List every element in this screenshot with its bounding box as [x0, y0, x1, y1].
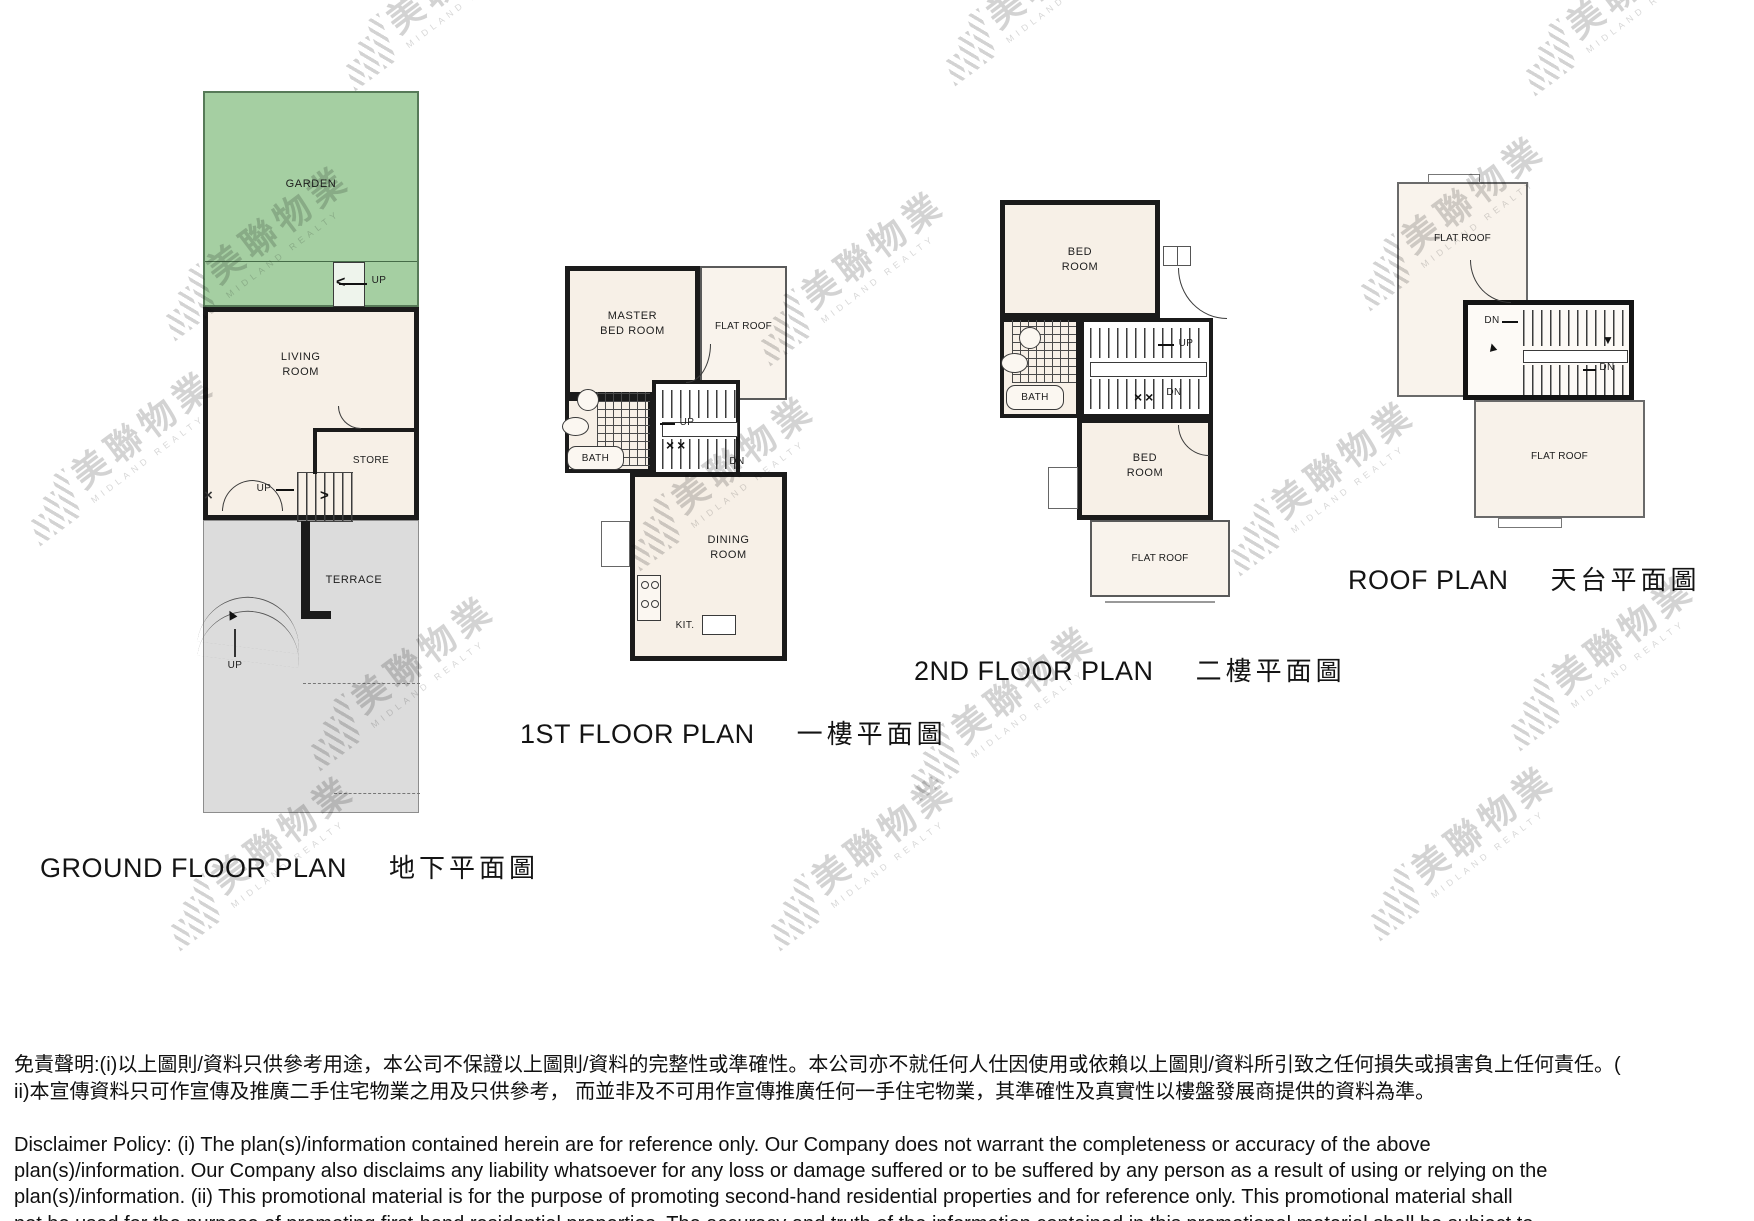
- first-up-label: UP: [676, 416, 698, 430]
- garden-terrace-divider-line: [205, 261, 417, 262]
- terrace-dashed-boundary: [303, 683, 420, 684]
- first-bathtub: BATH: [567, 446, 624, 470]
- watermark-text: 美聯物業: [794, 182, 953, 316]
- first-exterior-box: [601, 521, 630, 567]
- burner-3: [641, 600, 649, 608]
- roof-plan-title-zh: 天台平面圖: [1551, 565, 1701, 595]
- watermark-text: 美聯物業: [804, 767, 963, 901]
- watermark-subtext: MIDLAND REALTY: [404, 0, 544, 50]
- second-hall-door-arc: [1178, 268, 1227, 319]
- dining-room-label: DINING ROOM: [655, 533, 802, 563]
- ground-living-room: LIVING ROOM STORE > UP ×: [203, 307, 419, 520]
- burner-1: [641, 581, 649, 589]
- disclaimer-text-zh: 免責聲明:(i)以上圖則/資料只供參考用途，本公司不保證以上圖則/資料的完整性或…: [14, 1052, 1746, 1105]
- first-flat-roof-label: FLAT ROOF: [702, 320, 785, 334]
- second-door-swing-marks: ××: [1134, 390, 1156, 404]
- second-floor-plan-title-zh: 二樓平面圖: [1196, 656, 1346, 686]
- midland-watermark: 美聯物業 MIDLAND REALTY: [1354, 760, 1570, 939]
- disclaimer-block: 免責聲明:(i)以上圖則/資料只供參考用途，本公司不保證以上圖則/資料的完整性或…: [14, 1026, 1746, 1221]
- first-bath-sink: [577, 389, 599, 411]
- first-bath-toilet: [562, 417, 589, 436]
- entrance-door-arc-left: [222, 480, 253, 511]
- terrace-up-stem-line: [234, 629, 236, 657]
- first-dn-label: DN: [726, 455, 748, 469]
- ground-garden-area: GARDEN < UP: [203, 91, 419, 307]
- living-room-label: LIVING ROOM: [208, 350, 393, 380]
- midland-watermark: 美聯物業 MIDLAND REALTY: [894, 620, 1110, 799]
- midland-watermark: 美聯物業 MIDLAND REALTY: [754, 770, 970, 949]
- kitchen-label: KIT.: [670, 619, 700, 633]
- first-up-line: [660, 423, 675, 425]
- midland-logo-icon: [1354, 867, 1427, 939]
- midland-watermark: 美聯物業 MIDLAND REALTY: [1214, 395, 1430, 574]
- second-bedroom-bottom-label: BED ROOM: [1082, 451, 1208, 481]
- watermark-text: 美聯物業: [1559, 0, 1718, 46]
- entrance-door-arc-right: [252, 480, 283, 511]
- ground-floor-plan-title-en: GROUND FLOOR PLAN: [40, 853, 347, 883]
- roof-dn-right-label: DN: [1596, 361, 1618, 375]
- floorplan-page: GARDEN < UP LIVING ROOM STORE > UP × TER…: [0, 0, 1754, 1221]
- watermark-subtext: MIDLAND REALTY: [1004, 0, 1144, 45]
- first-master-bedroom: MASTER BED ROOM: [565, 266, 700, 397]
- watermark-text: 美聯物業: [979, 0, 1138, 36]
- first-floor-plan-title-zh: 一樓平面圖: [797, 719, 947, 749]
- second-flat-roof-label: FLAT ROOF: [1092, 552, 1228, 566]
- midland-logo-icon: [754, 877, 827, 949]
- watermark-subtext: MIDLAND REALTY: [829, 801, 969, 910]
- second-dn-label: DN: [1163, 386, 1185, 400]
- second-floor-plan-title: 2ND FLOOR PLAN二樓平面圖: [914, 651, 1346, 688]
- ground-terrace-area: TERRACE ▲ UP: [203, 520, 419, 813]
- terrace-wall-vertical: [301, 521, 310, 618]
- midland-logo-icon: [929, 12, 1002, 84]
- garden-up-arrow-icon: <: [336, 275, 345, 291]
- second-up-line: [1158, 344, 1174, 346]
- midland-logo-icon: [14, 472, 87, 544]
- wall-window-x-mark: ×: [204, 488, 213, 503]
- second-bedroom-bottom: BED ROOM: [1077, 418, 1213, 520]
- second-stairs-rail: [1090, 362, 1207, 377]
- first-kitchen-sink: [702, 615, 736, 635]
- roof-stairs-down-arrow-icon: ▼: [1602, 334, 1614, 346]
- midland-logo-icon: [1494, 677, 1567, 749]
- second-bath-label: BATH: [1007, 391, 1063, 405]
- watermark-text: 美聯物業: [1264, 392, 1423, 526]
- roof-flat-roof-top-label: FLAT ROOF: [1399, 232, 1526, 246]
- second-balcony-edge-line: [1105, 601, 1215, 603]
- second-bath-toilet: [1001, 353, 1028, 373]
- second-bedroom-top: BED ROOM: [1000, 200, 1160, 318]
- first-door-swing-marks: ××: [666, 438, 688, 452]
- second-up-label: UP: [1175, 337, 1197, 351]
- second-flat-roof: FLAT ROOF: [1090, 520, 1230, 597]
- second-bedroom-top-label: BED ROOM: [1005, 245, 1155, 275]
- first-bath-label: BATH: [568, 452, 623, 466]
- ground-stairs-up-line: [276, 489, 294, 491]
- watermark-subtext: MIDLAND REALTY: [1584, 0, 1724, 55]
- midland-watermark: 美聯物業 MIDLAND REALTY: [14, 365, 230, 544]
- garden-up-label: UP: [367, 274, 391, 288]
- watermark-subtext: MIDLAND REALTY: [1429, 791, 1569, 900]
- midland-watermark: 美聯物業 MIDLAND REALTY: [1509, 0, 1725, 94]
- second-closet-divider: [1177, 246, 1178, 266]
- ground-stairs-direction-arrow-icon: >: [320, 488, 329, 503]
- roof-plan-title: ROOF PLAN天台平面圖: [1348, 560, 1701, 597]
- midland-watermark: 美聯物業 MIDLAND REALTY: [929, 0, 1145, 84]
- watermark-subtext: MIDLAND REALTY: [1569, 601, 1709, 710]
- first-floor-plan-title-en: 1ST FLOOR PLAN: [520, 719, 755, 749]
- ground-floor-plan-title: GROUND FLOOR PLAN地下平面圖: [40, 848, 539, 885]
- store-wall-horizontal: [313, 428, 414, 432]
- roof-flat-roof-bottom: FLAT ROOF: [1474, 400, 1645, 518]
- second-exterior-box: [1048, 467, 1078, 509]
- watermark-text: 美聯物業: [64, 362, 223, 496]
- burner-2: [651, 581, 659, 589]
- midland-logo-icon: [1509, 22, 1582, 94]
- first-floor-plan-title: 1ST FLOOR PLAN一樓平面圖: [520, 714, 947, 751]
- second-floor-plan-title-en: 2ND FLOOR PLAN: [914, 656, 1154, 686]
- roof-dn-left-label: DN: [1481, 314, 1503, 328]
- terrace-label: TERRACE: [294, 573, 414, 588]
- roof-dn-right-line: [1583, 369, 1596, 371]
- second-bathtub: BATH: [1006, 385, 1064, 410]
- watermark-text: 美聯物業: [379, 0, 538, 41]
- burner-4: [651, 600, 659, 608]
- first-stairs-upper-run: [662, 390, 736, 418]
- roof-bottom-ledge: [1498, 518, 1562, 528]
- first-kitchen-counter: [637, 575, 661, 621]
- store-door-arc: [338, 406, 361, 429]
- terrace-dashed-bottom: [334, 793, 420, 794]
- second-bath-sink: [1019, 327, 1041, 349]
- store-wall-vertical: [313, 428, 317, 474]
- store-label: STORE: [326, 454, 416, 468]
- ground-floor-plan-title-zh: 地下平面圖: [389, 853, 539, 883]
- roof-top-notch: [1428, 174, 1480, 183]
- roof-plan-title-en: ROOF PLAN: [1348, 565, 1509, 595]
- master-bedroom-label: MASTER BED ROOM: [570, 309, 695, 339]
- midland-watermark: 美聯物業 MIDLAND REALTY: [329, 0, 545, 89]
- roof-flat-roof-bottom-label: FLAT ROOF: [1476, 450, 1643, 464]
- watermark-subtext: MIDLAND REALTY: [819, 216, 959, 325]
- terrace-wall-step: [301, 611, 331, 619]
- roof-dn-left-line: [1502, 321, 1518, 323]
- watermark-subtext: MIDLAND REALTY: [1289, 426, 1429, 535]
- terrace-up-label: UP: [222, 659, 248, 673]
- garden-label: GARDEN: [205, 177, 417, 192]
- disclaimer-text-en: Disclaimer Policy: (i) The plan(s)/infor…: [14, 1132, 1746, 1221]
- midland-logo-icon: [154, 877, 227, 949]
- midland-logo-icon: [329, 17, 402, 89]
- watermark-text: 美聯物業: [1404, 757, 1563, 891]
